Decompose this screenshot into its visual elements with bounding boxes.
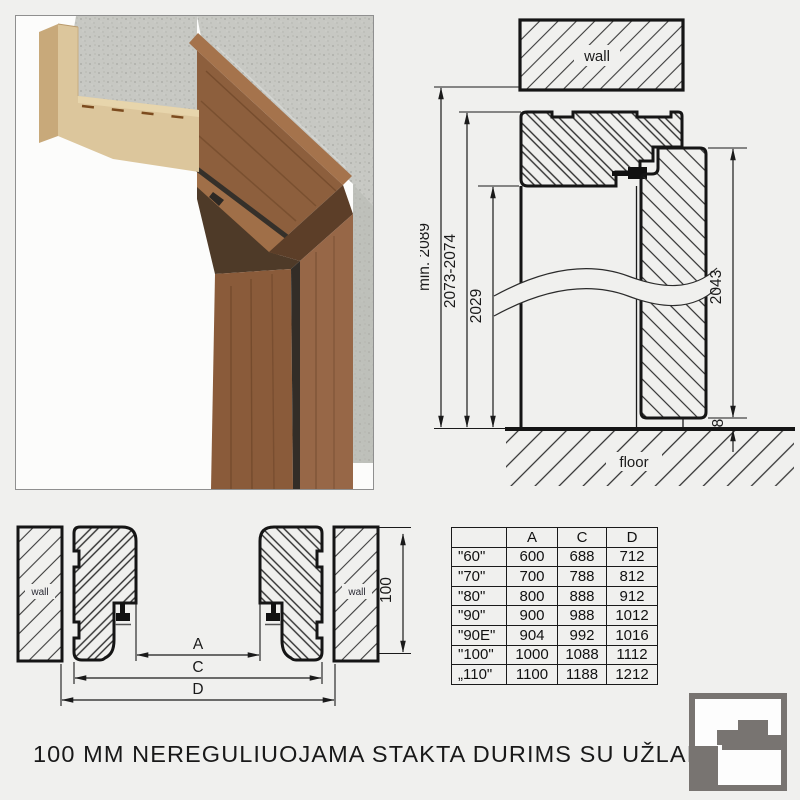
dim-d-label: D [192,681,203,698]
cell-d: 1112 [607,645,658,665]
frame-corner-3d-render [15,15,374,490]
cell-c: 788 [558,567,607,587]
cell-size: "90E" [452,625,507,645]
cell-size: "80" [452,586,507,606]
cell-a: 1000 [507,645,558,665]
table-row: "90E" 904 992 1016 [452,625,658,645]
cell-a: 700 [507,567,558,587]
floor-label: floor [619,454,648,471]
brand-logo [686,690,790,794]
frame-corner-3d-image [16,16,373,489]
col-header-c: C [558,528,607,548]
table-row: „110" 1100 1188 1212 [452,665,658,685]
wall-label: wall [583,48,610,65]
seal-cap [116,613,130,621]
wall-left-label: wall [30,587,48,598]
cell-d: 912 [607,586,658,606]
table-row: "90" 900 988 1012 [452,606,658,626]
wall-right-label: wall [347,587,365,598]
cell-c: 988 [558,606,607,626]
dim-floor-gap: 8 [710,419,727,428]
cell-a: 800 [507,586,558,606]
table-header-row: A C D [452,528,658,548]
size-table: A C D "60" 600 688 712 "70" 700 788 812 … [451,527,658,685]
cell-d: 1012 [607,606,658,626]
col-header-d: D [607,528,658,548]
cell-size: „110" [452,665,507,685]
dim-depth-label: 100 [378,577,395,603]
col-header-size [452,528,507,548]
dim-a-label: A [193,636,204,653]
cell-a: 904 [507,625,558,645]
cell-size: "60" [452,547,507,567]
dim-c-label: C [192,659,203,676]
cell-size: "100" [452,645,507,665]
vertical-section-diagram: wall floor min. [420,0,800,500]
table-row: "70" 700 788 812 [452,567,658,587]
floor: floor [505,429,795,486]
cell-d: 712 [607,547,658,567]
dim-clear-height: 2029 [468,289,485,323]
horizontal-section-diagram: wall wall A C D 100 [0,500,440,730]
wall-block-right: wall [334,527,378,661]
cell-d: 1212 [607,665,658,685]
wall-block-left: wall [18,527,62,661]
cell-size: "70" [452,567,507,587]
cell-c: 888 [558,586,607,606]
dim-leaf-height: 2043 [708,270,725,304]
cell-a: 1100 [507,665,558,685]
cell-c: 1188 [558,665,607,685]
table-row: "100" 1000 1088 1112 [452,645,658,665]
page-root: { "page": { "background": "#f0f0ee", "ca… [0,0,800,800]
table-row: "60" 600 688 712 [452,547,658,567]
cell-d: 1016 [607,625,658,645]
cell-size: "90" [452,606,507,626]
cell-c: 992 [558,625,607,645]
cell-a: 600 [507,547,558,567]
cell-d: 812 [607,567,658,587]
table-row: "80" 800 888 912 [452,586,658,606]
cell-a: 900 [507,606,558,626]
frame-profile-right [260,527,322,660]
frame-profile-left [74,527,136,660]
cell-c: 688 [558,547,607,567]
product-caption: 100 MM NEREGULIUOJAMA STAKTA DURIMS SU U… [33,741,729,768]
col-header-a: A [507,528,558,548]
wall-block: wall [520,20,683,90]
logo-corner-block [689,746,718,791]
dim-frame-height: 2073-2074 [442,234,459,309]
dim-total-height: min. 2089 [420,223,433,291]
cell-c: 1088 [558,645,607,665]
